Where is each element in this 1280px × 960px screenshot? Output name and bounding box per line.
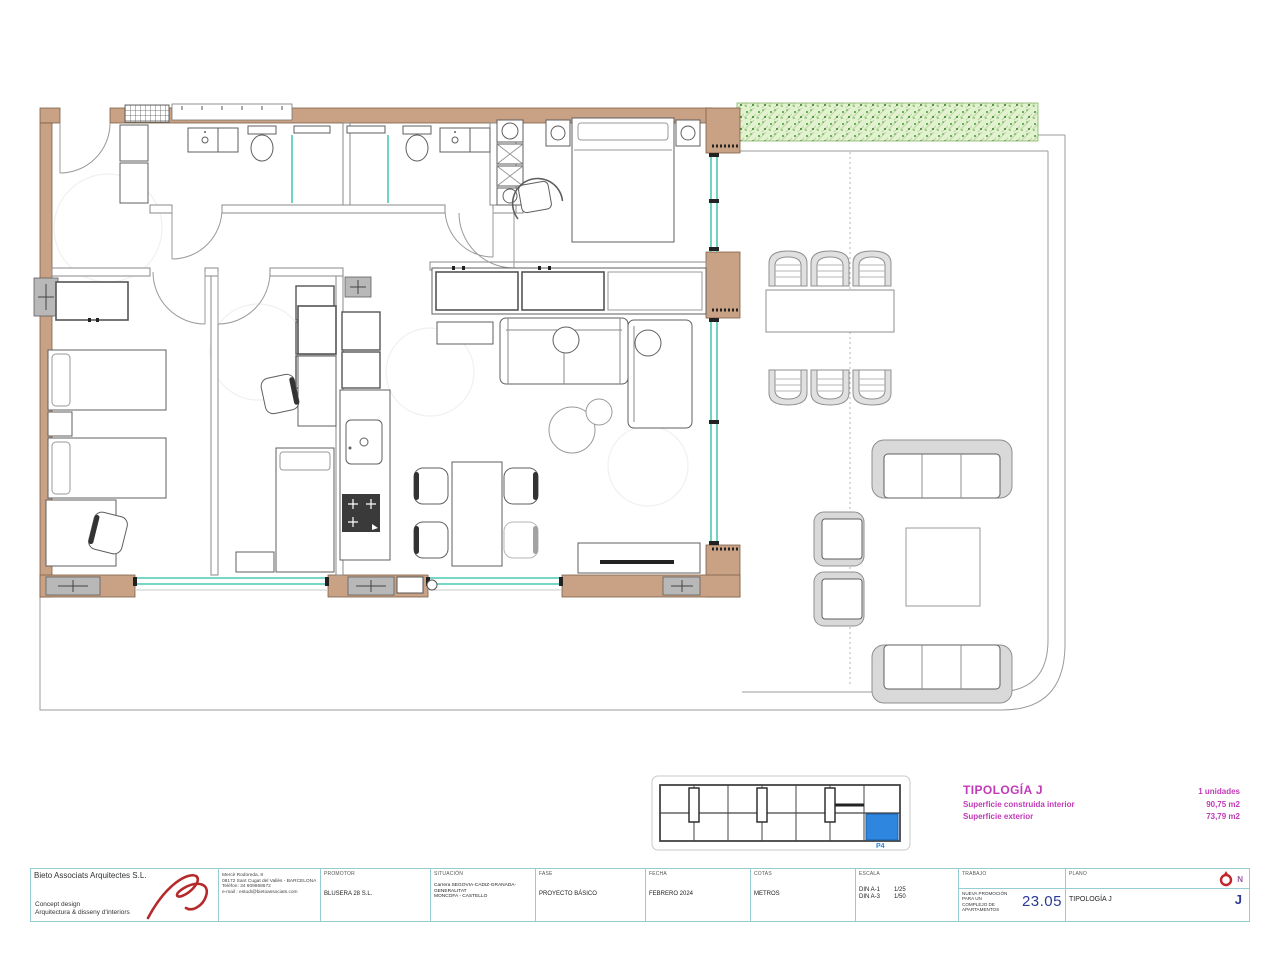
bedroom-3 [236, 306, 336, 572]
fecha-cell: FECHA FEBRERO 2024 [646, 869, 751, 921]
key-plan-unit-label: P4 [876, 843, 885, 850]
signature [144, 870, 216, 922]
surface-row-exterior: Superficie exterior 73,79 m2 [963, 812, 1240, 821]
highlighted-unit [866, 814, 898, 840]
sideboard [437, 322, 493, 344]
architect-address-cell: Mercè Rodoreda, 8 08172 Sant Cugat del V… [219, 869, 321, 921]
bedroom-2 [46, 282, 166, 566]
outdoor-dining-set [766, 251, 894, 405]
typology-legend: TIPOLOGÍA J 1 unidades Superficie constr… [963, 783, 1240, 821]
architect-tagline2: Arquitectura & disseny d'interiors [35, 909, 130, 917]
trabajo-cell: TRABAJO NUEVA PROMOCIÓN PARA UN COMPLEJO… [959, 869, 1066, 921]
coffee-table [906, 528, 980, 606]
architect-tagline1: Concept design [35, 901, 130, 909]
title-block: Bieto Associats Arquitectes S.L. Concept… [30, 868, 1250, 922]
plano-cell: PLANO N TIPOLOGÍA J J [1066, 869, 1249, 921]
architect-cell: Bieto Associats Arquitectes S.L. Concept… [31, 869, 219, 921]
fase-cell: FASE PROYECTO BÁSICO [536, 869, 646, 921]
drawing-number: 23.05 [1022, 893, 1062, 910]
floor-plan-sheet: { "colors":{ "wall":"#c9a184","wall-edge… [0, 0, 1280, 960]
key-plan [652, 776, 910, 850]
typology-title: TIPOLOGÍA J [963, 783, 1043, 797]
north-compass-icon [1218, 871, 1234, 887]
cotas-cell: COTAS METROS [751, 869, 856, 921]
master-bedroom [505, 118, 700, 242]
dining-table [452, 462, 502, 566]
promotor-cell: PROMOTOR BLUSERA 28 S.L. [321, 869, 431, 921]
bathroom-1 [188, 126, 330, 203]
typology-units: 1 unidades [1198, 787, 1240, 796]
outdoor-table [766, 290, 894, 332]
plano-title: TIPOLOGÍA J [1069, 896, 1112, 903]
wardrobe-row [432, 266, 706, 314]
north-label: N [1237, 875, 1243, 884]
outdoor-lounge-set [814, 440, 1012, 703]
situacion-cell: SITUACIÓN Carrera SEGOVIA-CADIZ-GRANADA-… [431, 869, 536, 921]
plano-code: J [1235, 892, 1242, 907]
surface-row-interior: Superficie construida interior 90,75 m2 [963, 800, 1240, 809]
bathroom-2 [347, 126, 490, 203]
hedge [737, 103, 1038, 141]
dining-set [414, 462, 538, 566]
tv-console [578, 543, 700, 573]
escala-cell: ESCALA DIN A-11/25 DIN A-31/50 [856, 869, 959, 921]
sofa-set [500, 318, 692, 453]
